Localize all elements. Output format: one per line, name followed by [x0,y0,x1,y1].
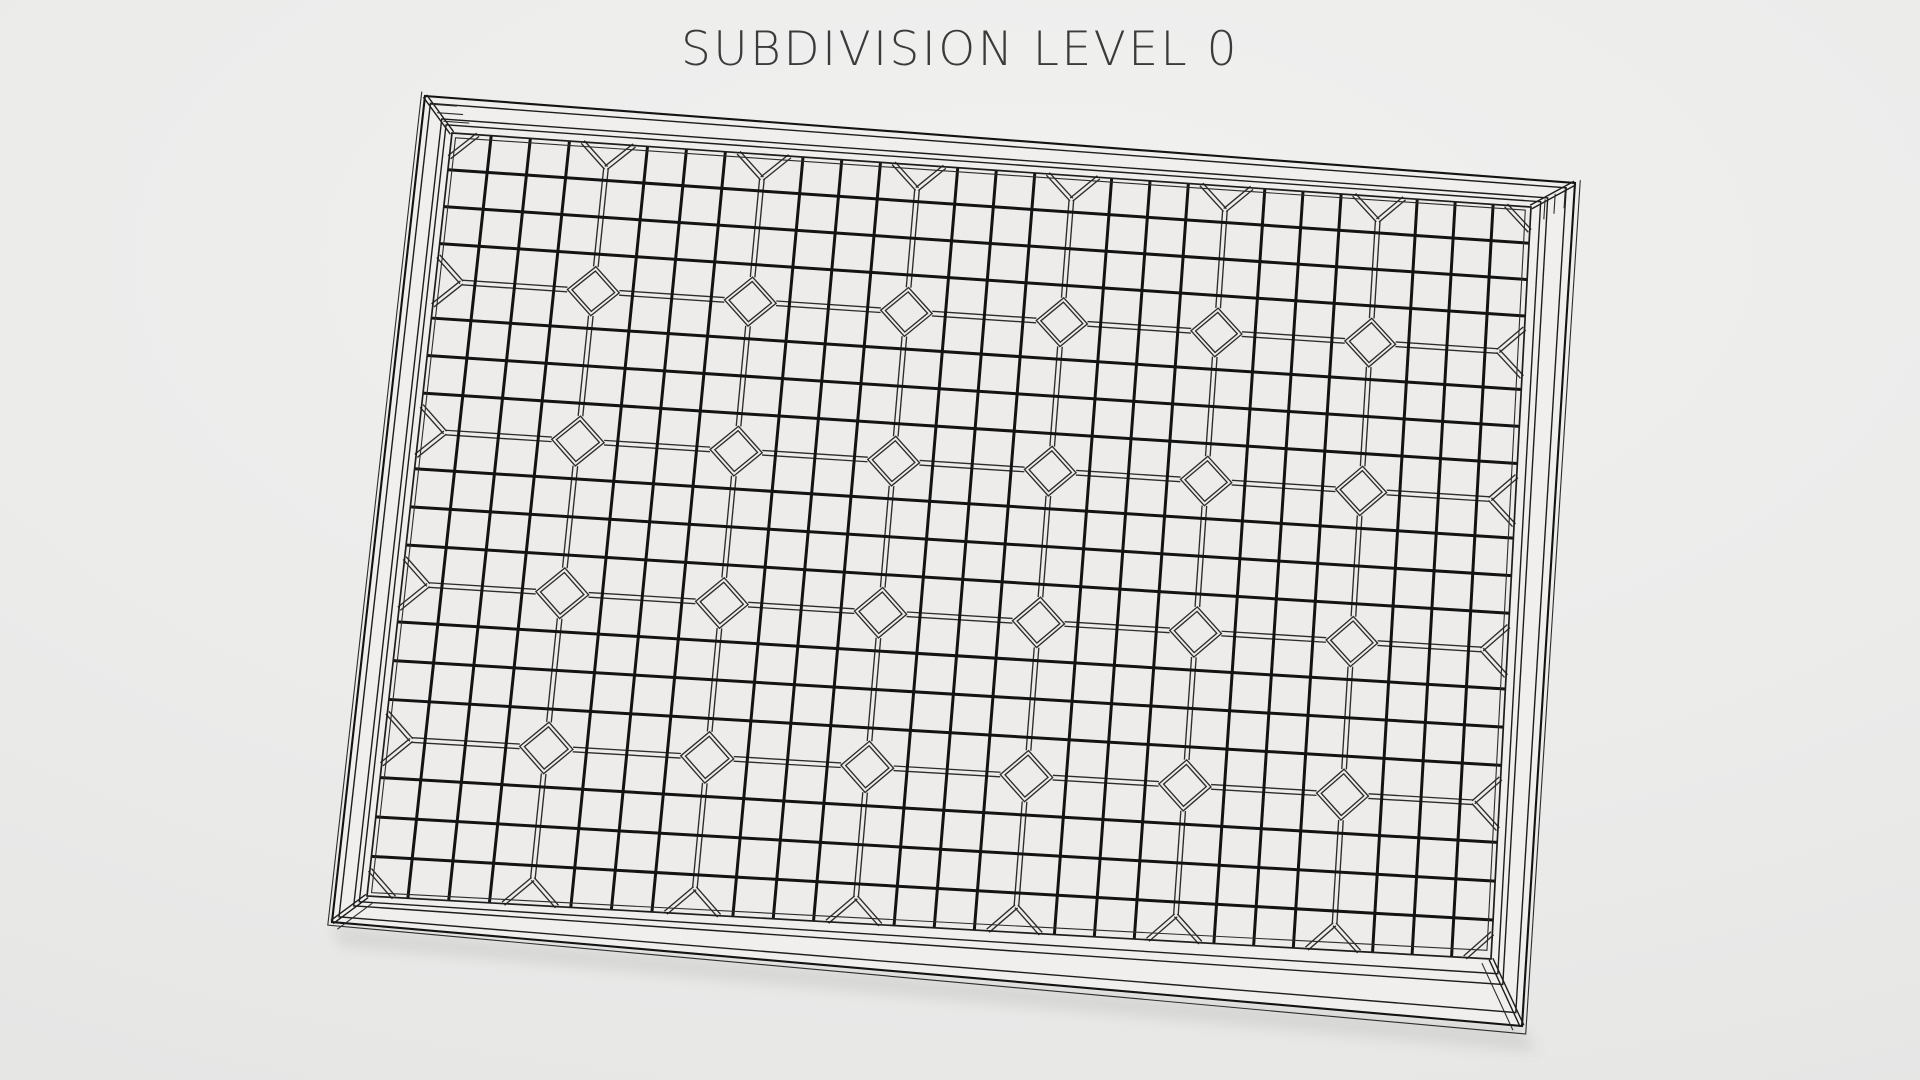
solar-panel-wireframe [0,0,1920,1080]
render-viewport: SUBDIVISION LEVEL 0 [0,0,1920,1080]
